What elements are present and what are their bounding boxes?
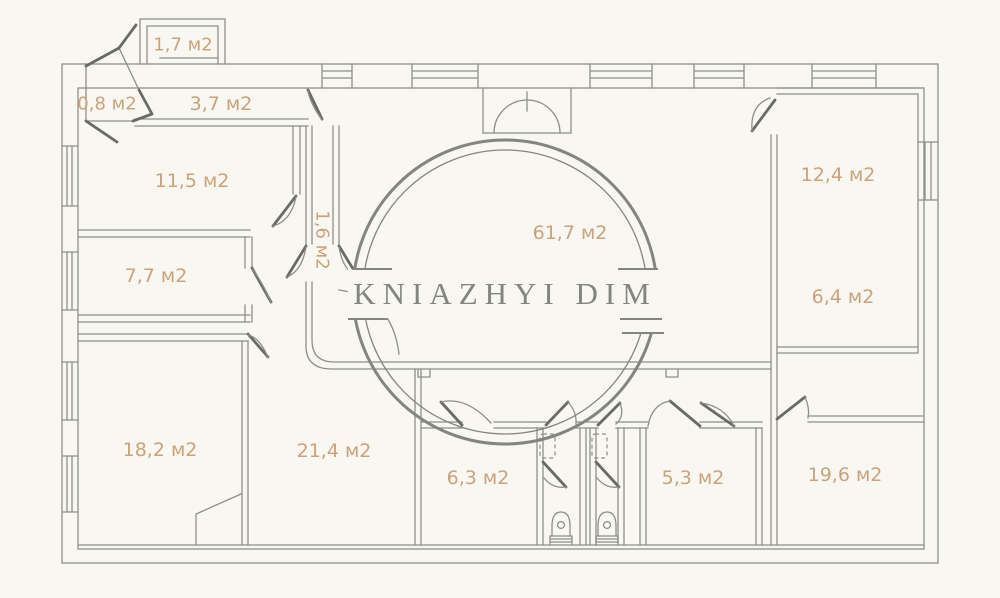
room-label-1-6: 1,6 м2: [312, 210, 333, 269]
room-label-7-7: 7,7 м2: [125, 265, 188, 287]
room-label-61-7: 61,7 м2: [533, 222, 608, 244]
room-label-11-5: 11,5 м2: [155, 170, 230, 192]
room-label-vestibule: 0,8 м2: [77, 94, 136, 115]
floorplan: KNIAZHYI DIM 1,7 м2 0,8 м2 3,7 м2 11,5 м…: [0, 0, 1000, 598]
room-label-balcony: 1,7 м2: [153, 35, 212, 56]
room-label-12-4: 12,4 м2: [801, 164, 876, 186]
room-label-18-2: 18,2 м2: [123, 439, 198, 461]
room-label-6-3: 6,3 м2: [447, 467, 510, 489]
room-label-21-4: 21,4 м2: [297, 440, 372, 462]
toilet-icons: [540, 434, 618, 545]
watermark-text: KNIAZHYI DIM: [353, 276, 657, 311]
room-label-5-3: 5,3 м2: [662, 467, 725, 489]
room-label-6-4: 6,4 м2: [812, 286, 875, 308]
room-label-19-6: 19,6 м2: [808, 464, 883, 486]
room-label-hallway: 3,7 м2: [190, 93, 253, 115]
entrance-door: [483, 88, 571, 133]
